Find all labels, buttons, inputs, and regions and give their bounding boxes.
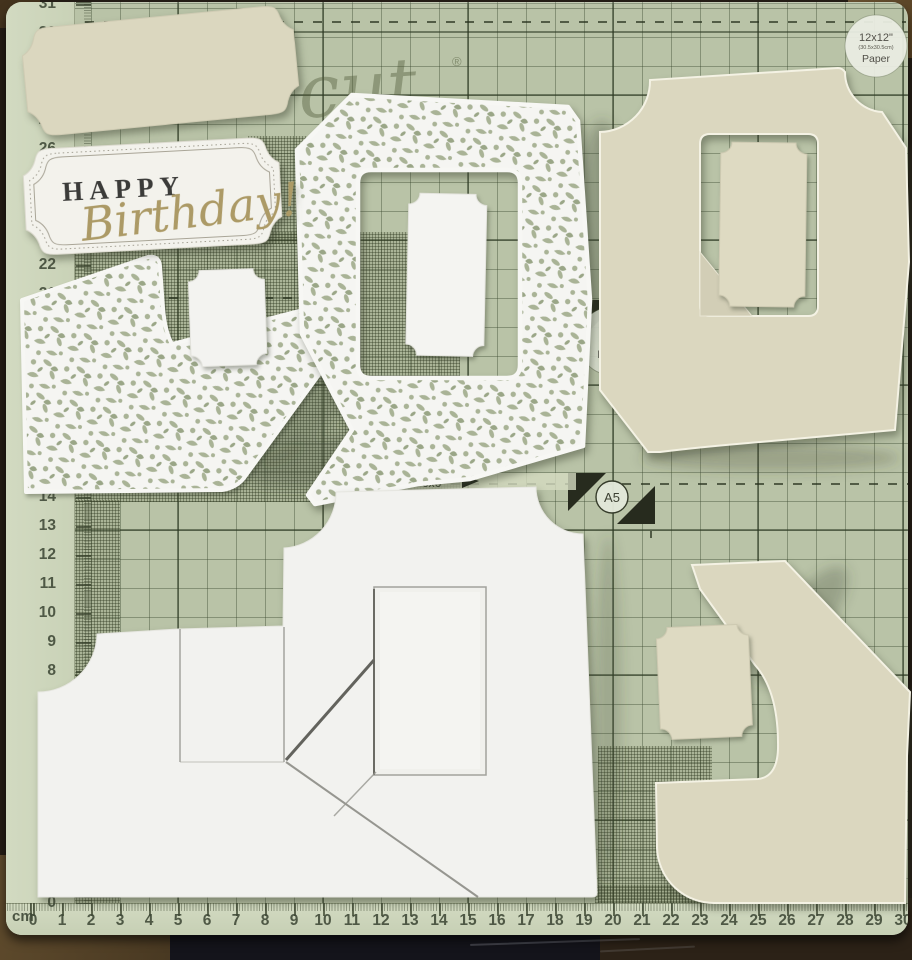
ruler-number: 28 — [16, 81, 56, 101]
ruler-number: 11 — [16, 574, 56, 594]
ruler-number: 6 — [16, 719, 56, 739]
mat-dashed-line — [28, 21, 906, 23]
ruler-number: 30 — [886, 911, 908, 931]
ruler-number: 15 — [16, 458, 56, 478]
ruler-number: 31 — [16, 2, 56, 14]
mat-dashed-line — [150, 297, 310, 299]
ruler-bottom-ticks-mm — [6, 903, 908, 911]
ruler-left-ticks-mm — [84, 2, 91, 904]
ruler-number: 3 — [16, 806, 56, 826]
photo-craft-mat: 0123456789101112131415161718192021222324… — [0, 0, 912, 960]
ruler-number: 20 — [16, 313, 56, 333]
ruler-number: 16 — [16, 429, 56, 449]
ruler-number: 12 — [16, 545, 56, 565]
ruler-number: 13 — [16, 516, 56, 536]
ruler-number: 7 — [16, 690, 56, 710]
mat-mesh-texture — [60, 232, 460, 502]
ruler-number: 25 — [16, 168, 56, 188]
ruler-number: 19 — [16, 342, 56, 362]
ruler-number: 22 — [16, 255, 56, 275]
mat-dashed-line — [318, 483, 908, 485]
ruler-number: 18 — [16, 371, 56, 391]
ruler-number: 26 — [16, 139, 56, 159]
ruler-number: 1 — [16, 864, 56, 884]
ruler-number: 9 — [16, 632, 56, 652]
ruler-number: 23 — [16, 226, 56, 246]
ruler-number: 30 — [16, 23, 56, 43]
ruler-number: 5 — [16, 748, 56, 768]
ruler-number: 27 — [16, 110, 56, 130]
mat-mesh-texture — [598, 746, 712, 905]
ruler-number: 4 — [16, 777, 56, 797]
ruler-number: 29 — [16, 52, 56, 72]
mat-dashed-line — [650, 492, 652, 538]
ruler-number: 21 — [16, 284, 56, 304]
mat-mesh-texture — [248, 136, 310, 244]
ruler-number: 24 — [16, 197, 56, 217]
mat-mesh-texture — [595, 885, 713, 903]
ruler-number: 10 — [16, 603, 56, 623]
ruler-number: 2 — [16, 835, 56, 855]
ruler-number: 17 — [16, 400, 56, 420]
ruler-number: 14 — [16, 487, 56, 507]
ruler-number: 8 — [16, 661, 56, 681]
ruler-unit-label: cm — [12, 908, 34, 925]
cutting-mat: 0123456789101112131415161718192021222324… — [6, 2, 908, 935]
